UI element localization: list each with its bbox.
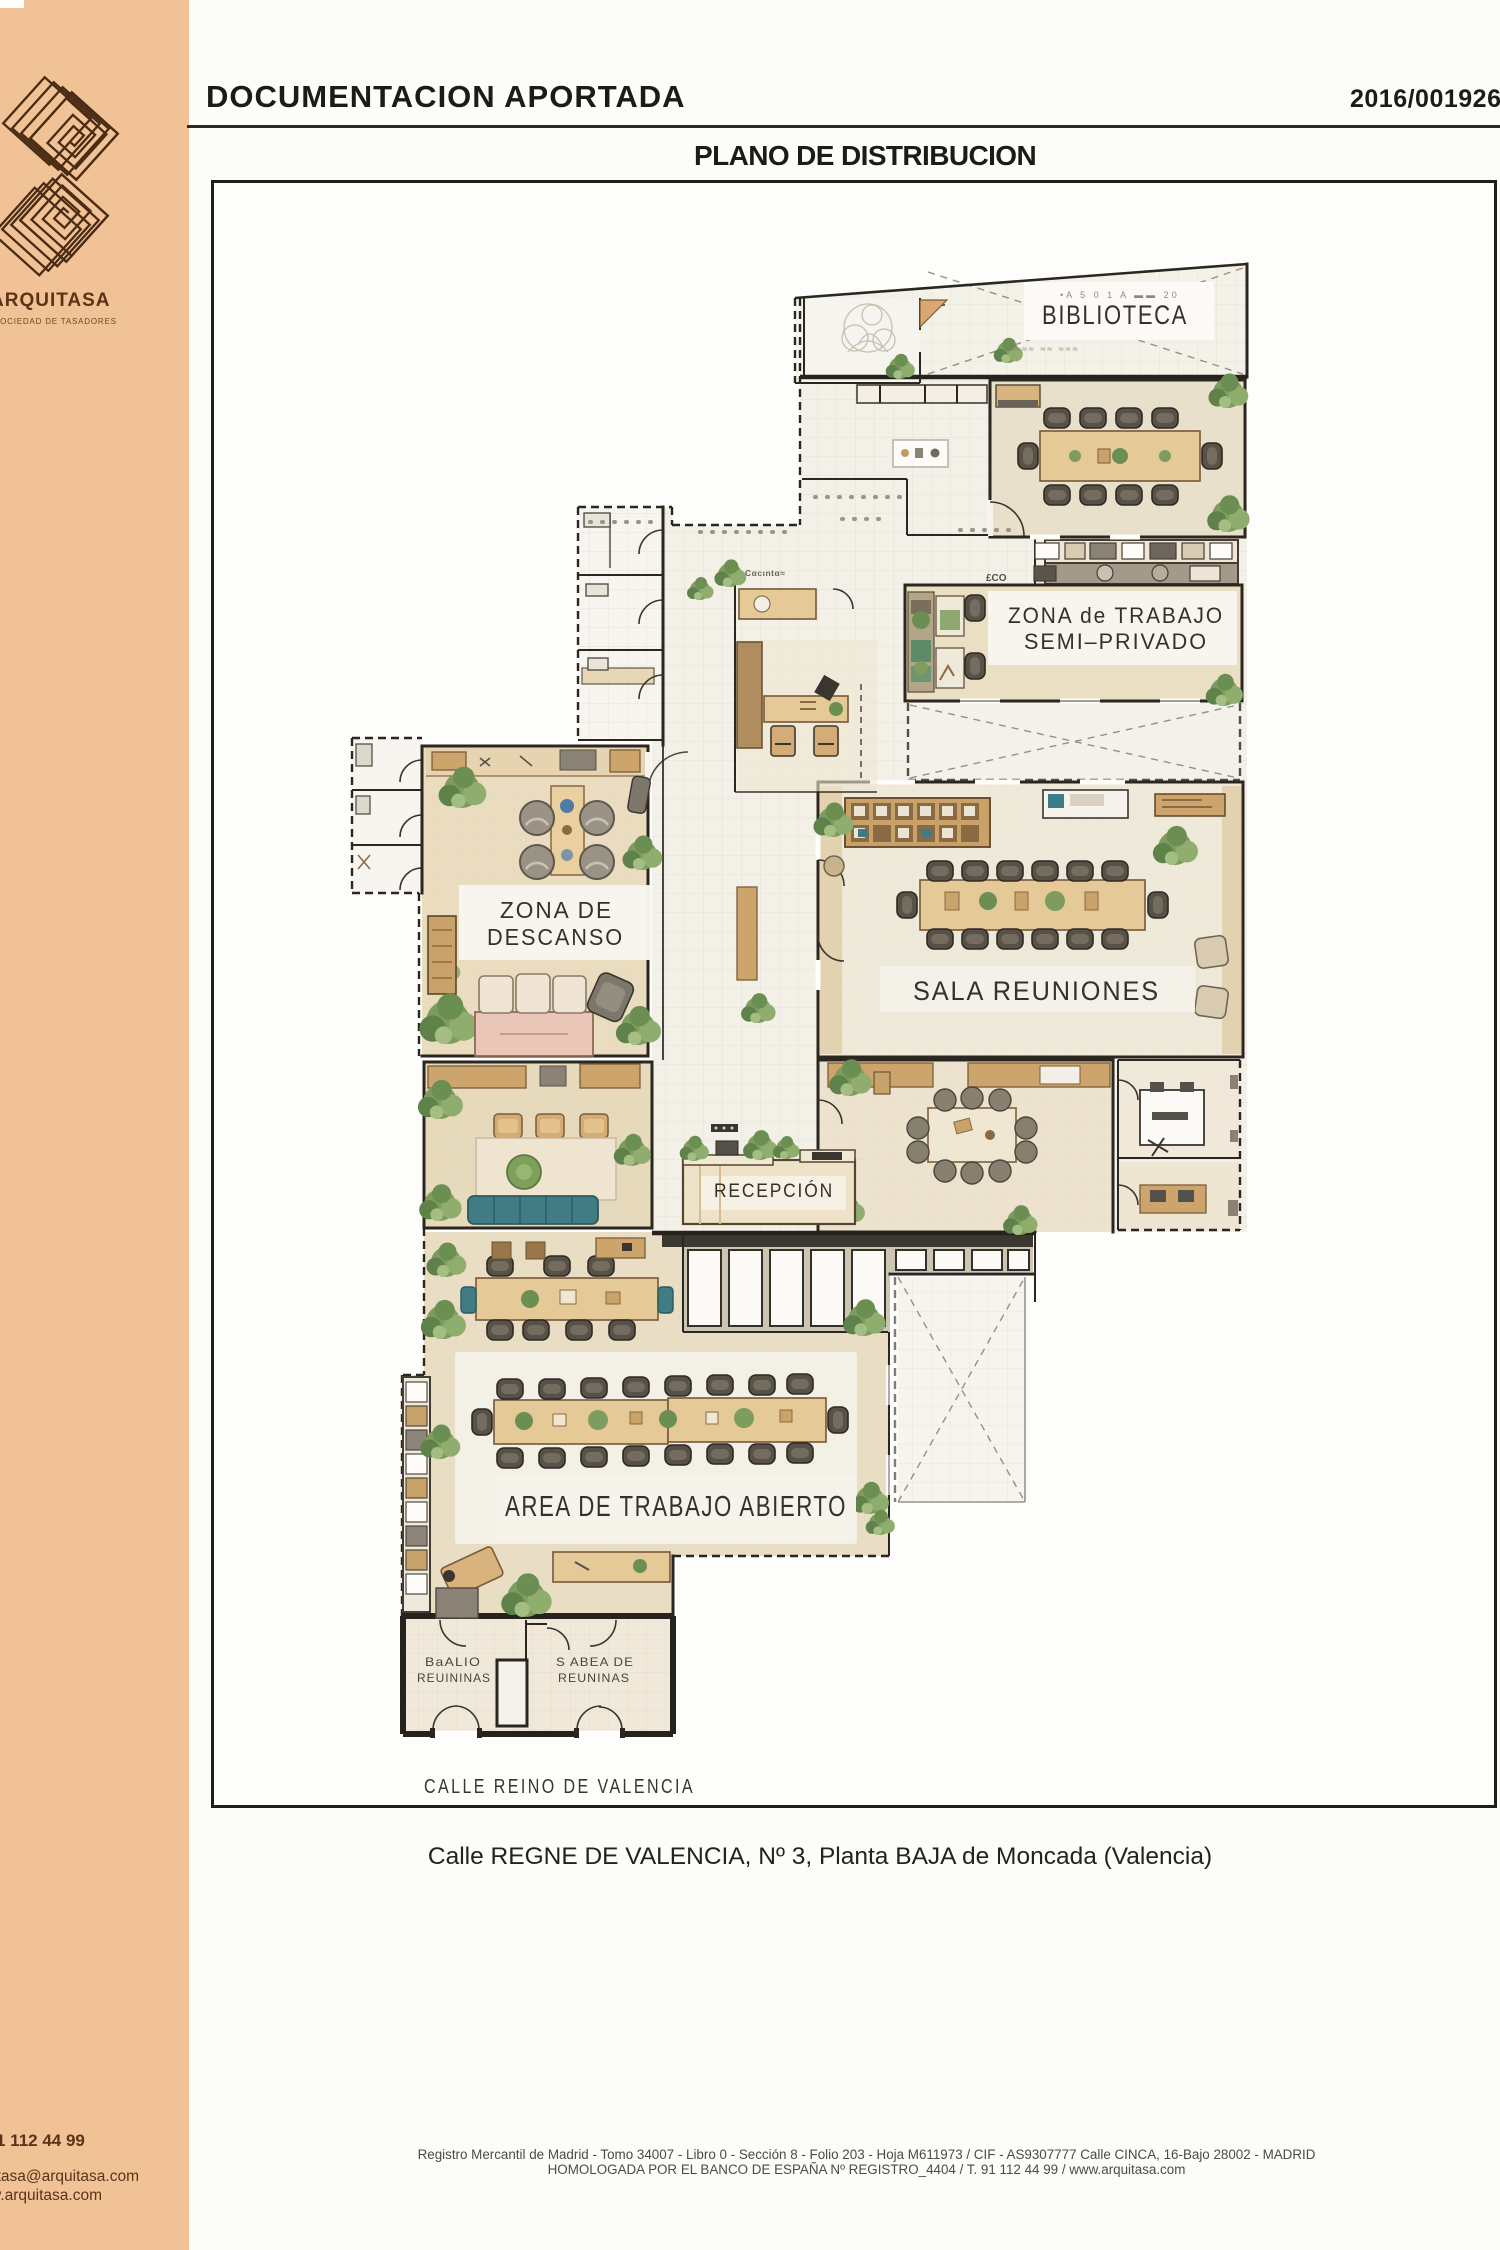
svg-text:•A 5 0 1 A ▬▬ 20: •A 5 0 1 A ▬▬ 20 — [1060, 290, 1180, 300]
svg-text:REUNINAS: REUNINAS — [558, 1671, 630, 1685]
svg-text:AREA DE TRABAJO ABIERTO: AREA DE TRABAJO ABIERTO — [505, 1491, 847, 1523]
svg-text:≈≈≈ ≈≈ ≈≈≈: ≈≈≈ ≈≈ ≈≈≈ — [1015, 344, 1080, 354]
svg-text:DESCANSO: DESCANSO — [487, 924, 624, 950]
svg-text:SALA REUNIONES: SALA REUNIONES — [913, 976, 1160, 1006]
svg-text:BaALIO: BaALIO — [425, 1655, 481, 1669]
svg-text:RECEPCIÓN: RECEPCIÓN — [714, 1180, 834, 1202]
svg-text:ZONA DE: ZONA DE — [500, 897, 613, 923]
svg-text:£CO: £CO — [986, 573, 1007, 584]
svg-text:REUININAS: REUININAS — [417, 1671, 491, 1685]
svg-text:SEMI–PRIVADO: SEMI–PRIVADO — [1024, 629, 1208, 654]
svg-text:BIBLIOTECA: BIBLIOTECA — [1042, 300, 1188, 330]
svg-text:S ABEA DE: S ABEA DE — [556, 1655, 634, 1669]
svg-text:CALLE REINO DE VALENCIA: CALLE REINO DE VALENCIA — [424, 1776, 695, 1798]
svg-text:Cαcιntα≈: Cαcιntα≈ — [745, 568, 785, 578]
svg-text:ZONA de TRABAJO: ZONA de TRABAJO — [1008, 603, 1224, 628]
